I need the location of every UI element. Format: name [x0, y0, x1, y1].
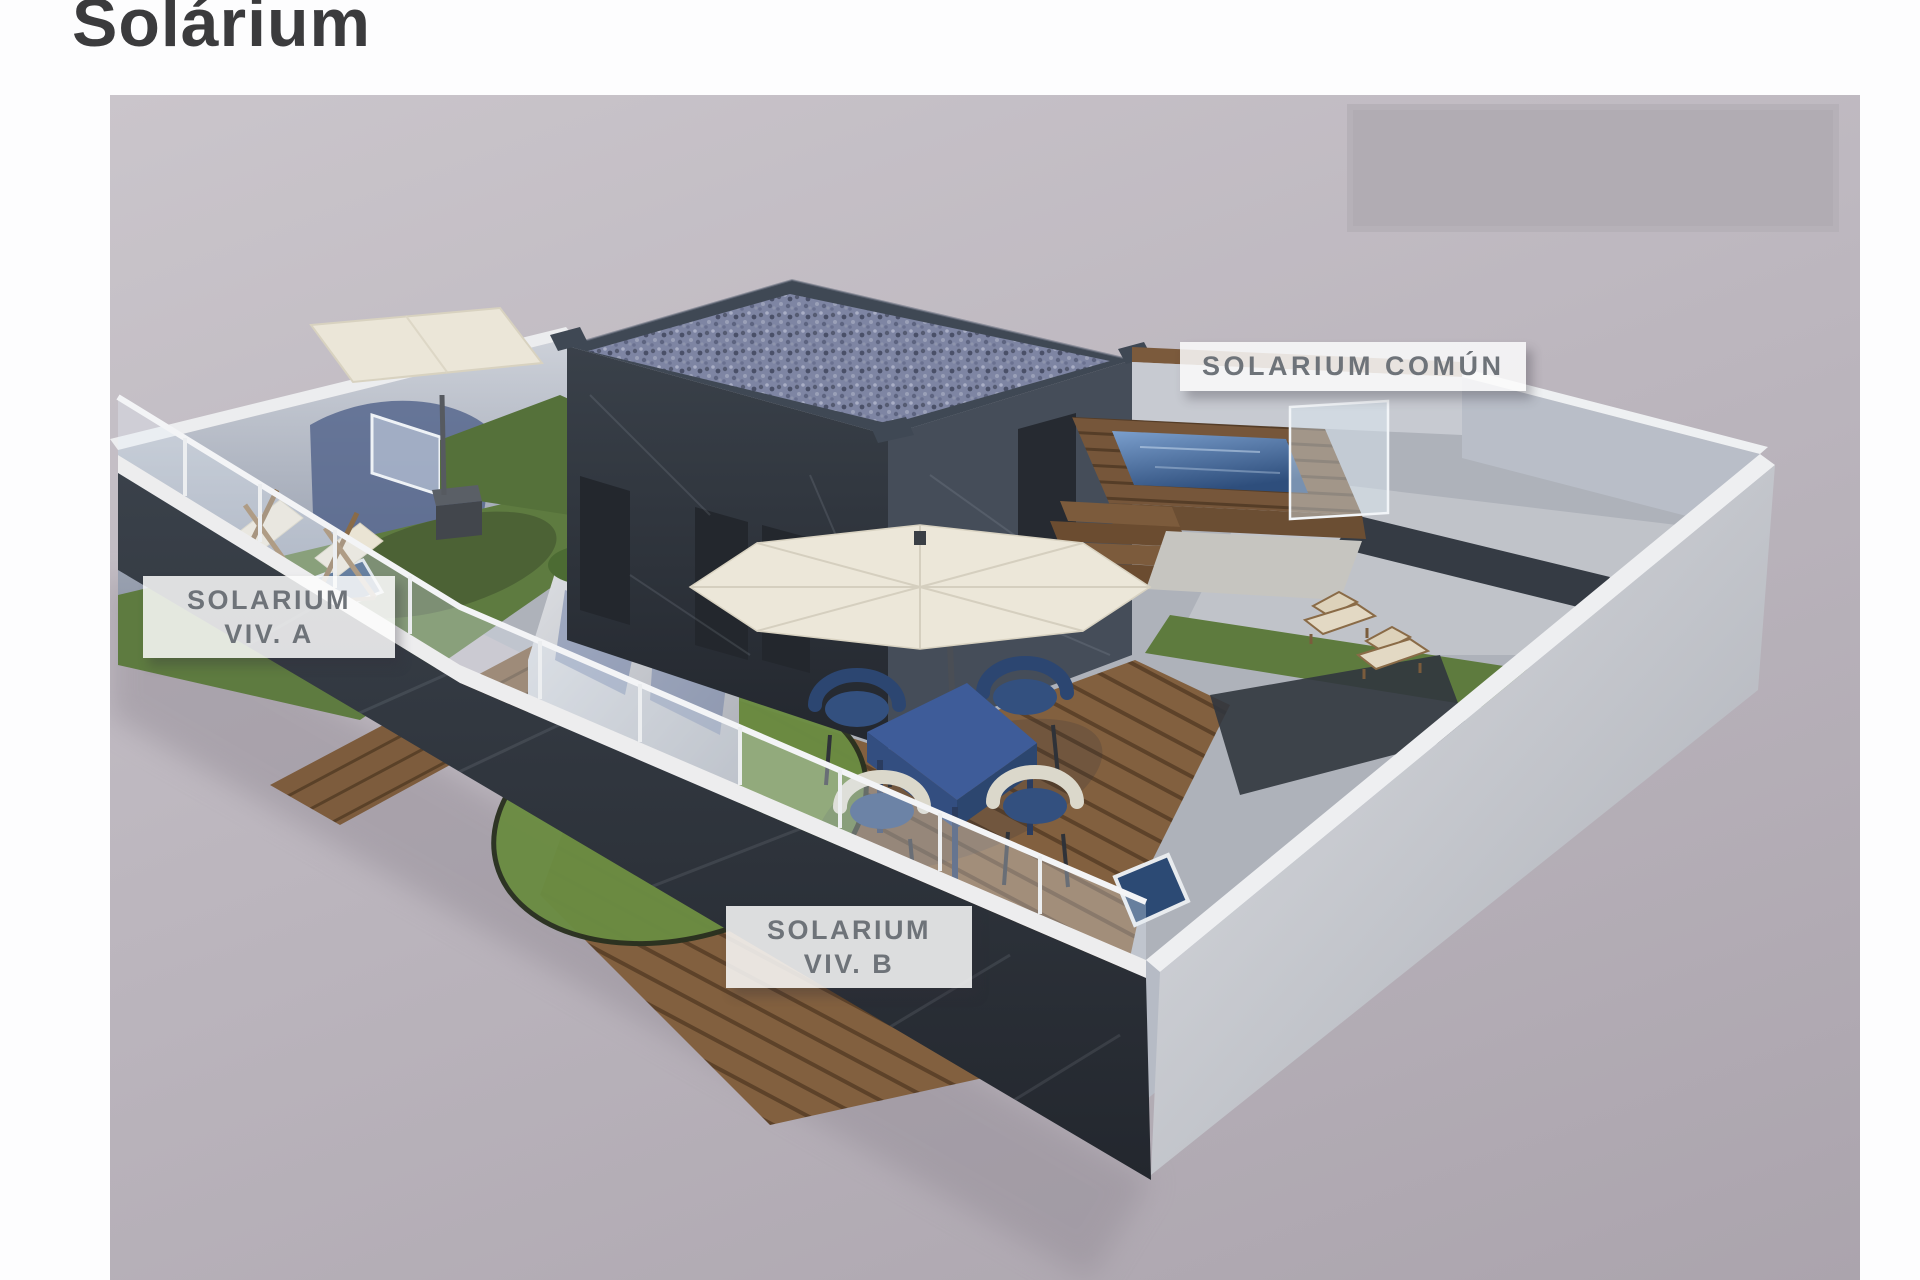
label-solarium-comun: SOLARIUM COMÚN	[1180, 342, 1526, 391]
label-line: VIV. B	[726, 947, 972, 981]
umbrella-b	[690, 525, 1150, 649]
page-title: Solárium	[72, 0, 371, 62]
render-graphic	[110, 95, 1860, 1280]
pool-water	[1112, 431, 1308, 493]
label-text: SOLARIUM COMÚN	[1202, 351, 1504, 381]
door	[580, 476, 630, 625]
blank-placeholder-box	[1347, 104, 1839, 232]
parasol-planter	[436, 501, 482, 540]
label-solarium-viv-a: SOLARIUM VIV. A	[143, 576, 395, 658]
concrete-base	[1146, 531, 1362, 600]
solarium-3d-render: SOLARIUM COMÚN SOLARIUM VIV. A SOLARIUM …	[110, 95, 1860, 1280]
umbrella-finial	[914, 531, 926, 545]
parasol-pole	[442, 395, 444, 495]
label-line: VIV. A	[143, 617, 395, 651]
label-line: SOLARIUM	[143, 583, 395, 617]
label-line: SOLARIUM	[726, 913, 972, 947]
label-solarium-viv-b: SOLARIUM VIV. B	[726, 906, 972, 988]
brochure-page: Solárium	[0, 0, 1920, 1280]
pool-glass-fence	[1290, 401, 1388, 519]
